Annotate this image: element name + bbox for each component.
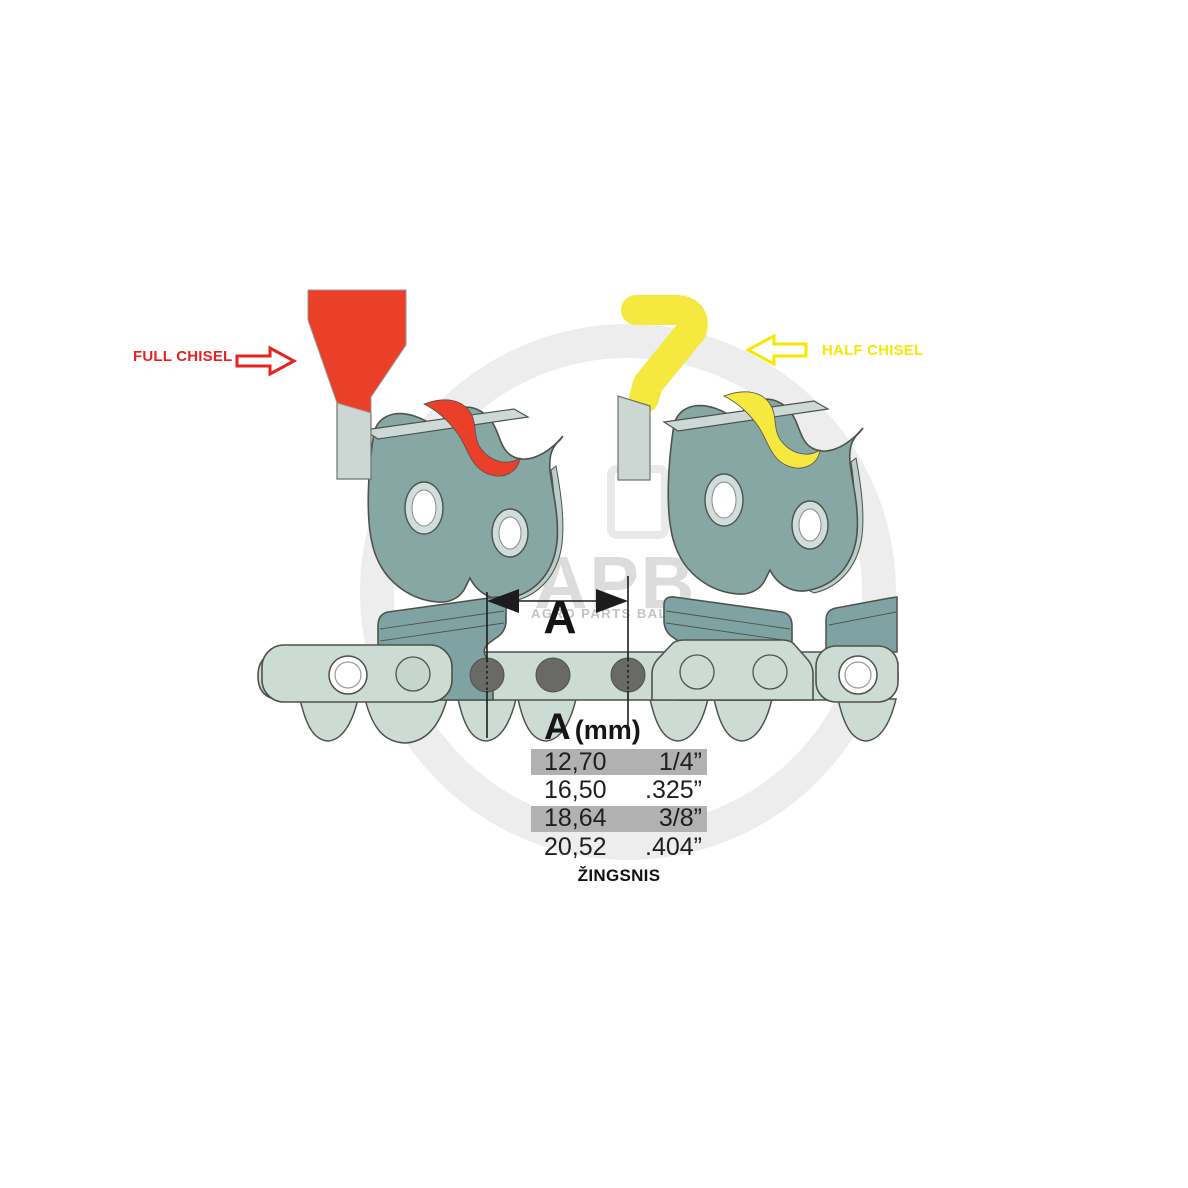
product-diagram-chainsaw-chain: APB AGRO PARTS BALTIJA (0, 0, 1188, 1188)
pitch-mm-value: 16,50 (531, 776, 607, 805)
dimension-arrowhead-right (596, 589, 628, 613)
pitch-table-header-symbol: A (531, 706, 571, 747)
full-chisel-cutter-link (364, 400, 563, 602)
pitch-table-header-unit: (mm) (575, 715, 641, 745)
full-chisel-arrow-icon (237, 348, 294, 374)
pitch-table-row: 20,52 .404” (531, 834, 707, 860)
pitch-table-header: A(mm) (531, 706, 707, 748)
pitch-table-row: 12,70 1/4” (531, 749, 707, 775)
chain-cutter-end (826, 597, 897, 652)
pitch-mm-value: 20,52 (531, 833, 607, 862)
pitch-inch-value: .404” (645, 833, 707, 862)
pitch-inch-value: .325” (645, 776, 707, 805)
dimension-a-label: A (530, 594, 590, 640)
chain-illustration (0, 0, 1188, 1188)
pitch-table: 12,70 1/4” 16,50 .325” 18,64 3/8” 20,52 … (531, 749, 707, 863)
full-chisel-label: FULL CHISEL (133, 348, 232, 365)
half-chisel-cutter-link (664, 392, 863, 594)
pitch-inch-value: 1/4” (659, 748, 707, 777)
half-chisel-profile-post (618, 396, 650, 480)
half-chisel-arrow-icon (748, 336, 806, 364)
pitch-table-row: 16,50 .325” (531, 777, 707, 803)
pitch-caption: ŽINGSNIS (531, 866, 707, 886)
full-chisel-profile-shape (308, 290, 406, 413)
full-chisel-profile-post (337, 401, 371, 479)
half-chisel-label: HALF CHISEL (822, 342, 923, 359)
pitch-mm-value: 18,64 (531, 804, 607, 833)
half-chisel-profile-shape (636, 310, 693, 398)
pitch-inch-value: 3/8” (659, 804, 707, 833)
rivet-dimension-start (470, 658, 504, 692)
tie-strap-center (652, 640, 813, 700)
pitch-table-row: 18,64 3/8” (531, 806, 707, 832)
pitch-mm-value: 12,70 (531, 748, 607, 777)
